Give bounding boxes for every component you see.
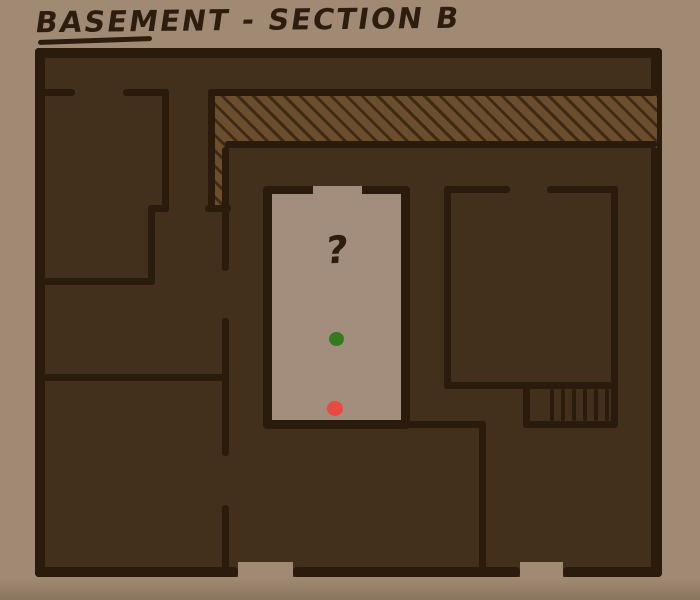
wall-segment	[611, 186, 618, 427]
wall-segment	[208, 89, 657, 96]
mystery-room: ?	[263, 186, 410, 429]
wall-segment	[479, 421, 486, 569]
hatched-area-band	[210, 91, 657, 148]
question-mark-marker: ?	[315, 227, 358, 274]
stairs-tread	[561, 389, 565, 421]
basement-floorplan: ?	[35, 48, 662, 577]
wall-segment	[444, 382, 618, 389]
stairs-tread	[583, 389, 587, 421]
wall-segment	[403, 421, 486, 428]
outer-wall-bottom-seg1	[35, 567, 238, 577]
wall-segment	[40, 374, 225, 381]
stairs-tread	[594, 389, 598, 421]
red-dot-marker	[327, 401, 343, 416]
stairs-tread	[605, 389, 609, 421]
wall-segment	[222, 147, 229, 210]
wall-segment	[444, 186, 451, 389]
bottom-opening-right	[520, 562, 563, 577]
wall-segment	[162, 89, 169, 212]
wall-segment	[222, 205, 229, 271]
wall-segment	[547, 186, 618, 193]
wall-segment	[225, 141, 657, 148]
outer-wall-bottom-seg2	[293, 567, 520, 577]
page-title: BASEMENT - SECTION B	[33, 1, 463, 39]
wall-segment	[208, 89, 215, 210]
stairs-tread	[572, 389, 576, 421]
bottom-opening-left	[238, 562, 293, 577]
outer-wall-left	[35, 48, 45, 577]
mystery-room-door	[313, 186, 362, 195]
wall-segment	[40, 278, 155, 285]
wall-segment	[40, 89, 75, 96]
green-dot-marker	[329, 332, 344, 346]
wall-segment	[222, 505, 229, 570]
bottom-shadow	[0, 577, 700, 600]
wall-segment	[444, 186, 510, 193]
outer-wall-top	[35, 48, 662, 58]
wall-segment	[148, 205, 155, 285]
wall-segment	[523, 421, 618, 428]
outer-wall-bottom-seg3	[563, 567, 662, 577]
stairs-tread	[550, 389, 554, 421]
wall-segment	[222, 318, 229, 456]
